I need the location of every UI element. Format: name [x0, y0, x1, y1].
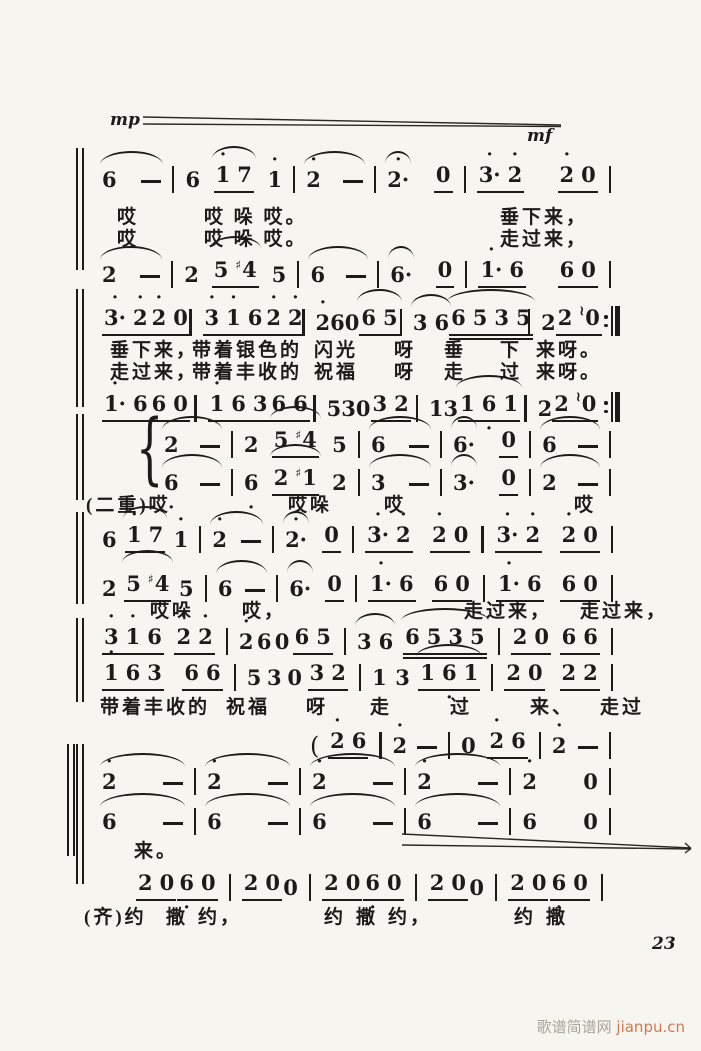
note-group [373, 782, 393, 796]
barline [609, 261, 611, 288]
note-group: 3··2· [365, 522, 413, 553]
note: 3· [205, 305, 220, 331]
barline [299, 768, 301, 795]
barline [352, 526, 354, 553]
note: 2 [554, 391, 569, 417]
note: 0 [356, 396, 371, 422]
barline [297, 261, 299, 288]
note: 1·· [480, 257, 502, 283]
note-group [343, 180, 363, 194]
barline [509, 808, 511, 835]
note: 6 [434, 310, 449, 336]
note-group [268, 822, 288, 836]
note: 1 [420, 660, 435, 686]
note: 3 [494, 305, 509, 331]
measure: 3·1·62·2· [193, 305, 302, 336]
note: 6 [231, 391, 246, 417]
note-group: 2 [538, 396, 553, 422]
repeat-end-barline [604, 306, 620, 336]
note: 2 [138, 870, 153, 896]
note: 5 [316, 624, 331, 650]
note: 0 [265, 870, 280, 896]
system-bracket [76, 618, 84, 702]
watermark-site-name: 歌谱简谱网 [537, 1018, 612, 1036]
note: 0 [324, 522, 339, 548]
note: 0 [345, 310, 360, 336]
note: 2 [184, 262, 199, 288]
note: 6· [365, 870, 380, 896]
note-group: 5 [272, 262, 287, 288]
note-group: 2·· [387, 167, 409, 193]
note-group: 6 [185, 167, 200, 193]
note: 2· [306, 167, 321, 193]
repeat-dot [604, 315, 608, 319]
ornament-icon: ≀ [579, 304, 584, 319]
note-group: 1·63 [208, 391, 270, 422]
barline [539, 732, 541, 759]
dash-note [373, 822, 393, 826]
note-group: 3 [395, 665, 410, 691]
octave-dot-above: · [421, 757, 427, 767]
lyric-segment: 撒 [356, 902, 378, 929]
note: 0 [327, 571, 342, 597]
octave-dot-above: · [230, 293, 236, 303]
watermark-domain-link[interactable]: jianpu.cn [616, 1018, 685, 1036]
note: 2· [102, 769, 117, 795]
note: 6 [147, 624, 162, 650]
voice-line: 225♯4566·06 [154, 422, 612, 458]
lyric-segment: 约， [388, 902, 432, 929]
dash-note [200, 483, 220, 487]
dash-note [417, 746, 437, 750]
barline [231, 431, 233, 458]
note-group: 65 [293, 624, 333, 655]
note-group: 2 [102, 262, 117, 288]
note: ≀0 [576, 385, 597, 417]
note: 2· [432, 522, 447, 548]
note-group: 1 [429, 396, 444, 422]
dash-note [241, 540, 261, 544]
lyrics-line: 哎哎 哚 哎。走过来， [92, 224, 612, 248]
note: 3·· [104, 305, 126, 331]
octave-dot-above: · [395, 155, 401, 165]
note-group: 20 [428, 870, 468, 901]
note: 2 [324, 870, 339, 896]
note: 0 [501, 427, 516, 453]
lyrics-line: 带着丰收的祝福呀走过来、走过 [92, 692, 614, 716]
octave-dot-above: · [397, 721, 403, 731]
barline [344, 628, 346, 655]
note: 6 [371, 432, 386, 458]
note: 1 [464, 660, 479, 686]
octave-dot-above: · [137, 293, 143, 303]
note: 6· [390, 262, 412, 288]
dash-note [373, 782, 393, 786]
note: ♯4 [148, 566, 169, 597]
note-group: 2·· [285, 527, 307, 553]
note-group: 5♯4 [212, 252, 259, 288]
note: 0 [287, 665, 302, 691]
note: 1· [174, 527, 189, 553]
measure: 1··660 [468, 257, 607, 288]
note-group: 1·7 [214, 162, 254, 193]
note-group: 6 [102, 167, 117, 193]
note-group: 6 [102, 527, 117, 553]
note-group [241, 540, 261, 554]
barline [172, 166, 174, 193]
octave-dot-above: · [436, 510, 442, 520]
voice-line: 2·2·2·2·2·0 [92, 768, 612, 795]
dash-note [409, 483, 429, 487]
note-group [163, 782, 183, 796]
note: 3 [267, 665, 282, 691]
dash-note [478, 782, 498, 786]
note-group: 20 [136, 870, 176, 901]
dash-note [140, 275, 160, 279]
repeat-end-barline [604, 392, 620, 422]
dynamic-mf-label: mf [527, 126, 552, 146]
octave-dot-above: · [217, 515, 223, 525]
barline [464, 166, 466, 193]
measure: 3··2·2·0 [485, 522, 610, 553]
barline [309, 874, 311, 901]
note-group: 0 [275, 629, 290, 655]
note: 0 [583, 769, 598, 795]
measure: 2··0 [377, 162, 462, 193]
measure: 2··0 [275, 522, 351, 553]
octave-dot-above: · [108, 648, 114, 658]
lyric-segment: (齐)约 [84, 902, 147, 929]
note: 1 [460, 391, 475, 417]
note: 2 [244, 870, 259, 896]
note-group: 0 [434, 162, 453, 193]
octave-dot-above: · [272, 155, 278, 165]
barline [609, 768, 611, 795]
octave-dot-above: · [156, 293, 162, 303]
note-group: 1· [174, 527, 189, 553]
note-group [478, 782, 498, 796]
lyric-segment: 祝福 [226, 692, 270, 719]
note: 2 [558, 305, 573, 331]
note-group: 20 [322, 870, 362, 901]
barline [194, 808, 196, 835]
lyric-segment: 约， [198, 902, 242, 929]
note: 0 [436, 162, 451, 188]
note: 0 [201, 870, 216, 896]
barline [415, 874, 417, 901]
dash-note [343, 180, 363, 184]
note: 5 [516, 305, 531, 331]
page-number: 23 [652, 934, 676, 954]
note: 1· [226, 305, 241, 331]
note-group: 16·1 [418, 660, 480, 691]
note: 0 [454, 522, 469, 548]
dash-note [409, 445, 429, 449]
barline [299, 808, 301, 835]
note-group: 6·0 [177, 870, 217, 901]
note: 0 [534, 624, 549, 650]
barline [272, 526, 274, 553]
note: 2· [489, 728, 504, 754]
repeat-dots [604, 401, 608, 413]
measure: 6 [92, 809, 193, 835]
note: 0 [581, 162, 596, 188]
note: 6 [562, 624, 577, 650]
dash-note [245, 589, 265, 593]
note-group: 1· [267, 167, 282, 193]
lyric-segment: 带着丰收的 [100, 692, 210, 719]
note-group: 2· [102, 769, 117, 795]
note: 6 [583, 624, 598, 650]
note-group [373, 822, 393, 836]
system-bracket [67, 744, 75, 856]
note-group: 60 [558, 257, 598, 288]
measure: 6·0 [380, 257, 464, 288]
lyric-segment: 走过 [600, 692, 644, 719]
lyrics-line: (齐)约撒约，约撒约，约撒 [92, 902, 604, 926]
note: 2· [212, 527, 227, 553]
barline [609, 808, 611, 835]
note: 6 [509, 257, 524, 283]
thin-bar [611, 306, 613, 336]
octave-dot-above: · [310, 155, 316, 165]
lyric-segment: 来呀。 [536, 357, 602, 384]
note: 0 [173, 305, 188, 331]
note-group: 0 [469, 875, 484, 901]
note: 0 [275, 629, 290, 655]
note: 3 [341, 396, 356, 422]
measure: 2022 [494, 660, 609, 691]
note-group: 3··2· [102, 305, 150, 336]
lyrics-line: 哎哎 哚 哎。垂下来， [92, 202, 612, 226]
note: 6 [511, 728, 526, 754]
barline [609, 431, 611, 458]
measure: 6·0 [443, 427, 528, 458]
note: 1· [267, 167, 282, 193]
note: 6 [102, 809, 117, 835]
note-group: 2·0 [430, 522, 470, 553]
barline [377, 261, 379, 288]
note: 0 [469, 875, 484, 901]
dash-note [200, 445, 220, 449]
octave-dot-above: · [106, 757, 112, 767]
note-group: 65 [359, 305, 399, 336]
barline [229, 874, 231, 901]
barline [481, 526, 483, 553]
barline [611, 628, 613, 655]
lyric-segment: 来。 [134, 836, 178, 863]
note-group: 0 [287, 665, 302, 691]
note: 6 [295, 624, 310, 650]
note: 6 [102, 167, 117, 193]
note-group: 1 [372, 665, 387, 691]
note: 6 [184, 660, 199, 686]
note-group: 6 [330, 310, 345, 336]
system-bracket [76, 148, 84, 270]
note-group: 22 [560, 660, 600, 691]
note-group: 6535 [449, 305, 533, 336]
note-group: 36 [357, 629, 393, 655]
thin-bar [611, 392, 613, 422]
watermark: 歌谱简谱网 jianpu.cn [537, 1016, 685, 1037]
note: 2· [393, 733, 408, 759]
barline [404, 808, 406, 835]
barline [440, 431, 442, 458]
octave-dot-above: · [566, 510, 572, 520]
note-group: 0 [345, 310, 360, 336]
note-group: 2· [312, 769, 327, 795]
measure: 206·0 [126, 870, 228, 901]
barline [194, 768, 196, 795]
note: 2· [522, 769, 537, 795]
measure: 200 [232, 870, 308, 901]
repeat-dot [604, 401, 608, 405]
measure: 6 [300, 262, 376, 288]
measure: 53032 [237, 660, 358, 691]
note: ≀0 [579, 299, 600, 331]
note-group [140, 275, 160, 289]
score-page: mp mf 661·71·2·2··03··2·2·0哎哎 哚 哎。垂下来，哎哎… [0, 0, 701, 1051]
note: 3 [373, 391, 388, 417]
note: 2 [562, 660, 577, 686]
note: 6 [560, 257, 575, 283]
note-group: 2·2· [264, 305, 304, 336]
octave-dot-above: · [334, 716, 340, 726]
octave-dot-above: · [181, 612, 187, 622]
note: 1·· [104, 391, 126, 417]
note-group: 1·7 [125, 522, 165, 553]
note: 5 [247, 665, 262, 691]
note-group: 2 [244, 432, 259, 458]
octave-dot-above: · [130, 612, 136, 622]
lyric-segment: 约 [324, 902, 346, 929]
lyric-segment: 过 [450, 692, 472, 719]
barline [609, 166, 611, 193]
note-group: 6 [310, 262, 325, 288]
lyric-segment: 约 [514, 902, 536, 929]
measure: 2· [542, 733, 608, 759]
measure: 2·6065 [306, 305, 399, 336]
note: 2· [330, 728, 345, 754]
lyric-segment: 撒 [546, 902, 568, 929]
note: 0 [532, 870, 547, 896]
octave-dot-above: · [378, 559, 384, 569]
note: 2 [583, 660, 598, 686]
measure: 2· [296, 167, 373, 193]
barline [611, 526, 613, 553]
lyric-segment: 祝福 [314, 357, 358, 384]
barline [358, 431, 360, 458]
note: 2· [207, 769, 222, 795]
note: 5 [332, 432, 347, 458]
note-group: 32 [308, 660, 348, 691]
note-group: 20 [508, 870, 548, 901]
note-group: 6·0 [363, 870, 403, 901]
note: 6 [310, 262, 325, 288]
barline [293, 166, 295, 193]
note: 6 [207, 809, 222, 835]
octave-dot-above: · [494, 716, 500, 726]
note-group [141, 180, 161, 194]
octave-dot-above: · [271, 293, 277, 303]
measure: 61·71· [175, 162, 292, 193]
note-group: 2· [306, 167, 321, 193]
note: 0 [346, 870, 361, 896]
barline [374, 166, 376, 193]
octave-dot-above: · [320, 298, 326, 308]
note: 5 [126, 571, 141, 597]
octave-dot-above: · [243, 617, 249, 627]
note-group: 66 [560, 624, 600, 655]
note: 7 [149, 522, 164, 548]
repeat-dots [604, 315, 608, 327]
octave-dot-above: · [488, 245, 494, 255]
barline [226, 628, 228, 655]
lyric-segment: 呀 [394, 357, 416, 384]
note: 0 [583, 571, 598, 597]
note: 6 [185, 167, 200, 193]
note: 6 [434, 571, 449, 597]
measure: 6 [302, 809, 403, 835]
voice-line: 61·71·2·2··03··2·2·03··2·2·0 [92, 522, 614, 553]
system-bracket [76, 414, 84, 500]
note: 0 [501, 465, 516, 491]
note-group: 6·0 [550, 870, 590, 901]
note: 6 [206, 660, 221, 686]
note-group: 6 [207, 809, 222, 835]
repeat-dot [604, 410, 608, 414]
octave-dot-above: · [487, 150, 493, 160]
note: 5 [327, 396, 342, 422]
note-group: 2·0 [558, 162, 598, 193]
barline [491, 664, 493, 691]
measure: 2066 [501, 624, 610, 655]
octave-dot-above: · [112, 379, 118, 389]
voice-line: 666660 [92, 808, 612, 835]
measure: 206·0 [498, 870, 600, 901]
note-group: 5 [327, 396, 342, 422]
lyric-segment: 来、 [530, 692, 574, 719]
note: 1·· [498, 571, 520, 597]
note: 1· [216, 162, 231, 188]
measure: 22≀0 [531, 299, 604, 336]
note-group: 2· [207, 769, 222, 795]
note: 6· [482, 391, 497, 417]
note: 0 [581, 257, 596, 283]
note: 2· [266, 305, 281, 331]
note: 2· [312, 769, 327, 795]
note-group: 2· [316, 310, 331, 336]
lyric-segment: 带着丰收的 [192, 357, 302, 384]
note: 6 [527, 571, 542, 597]
note: 2· [417, 769, 432, 795]
octave-dot-above: · [202, 612, 208, 622]
note: 0 [160, 870, 175, 896]
note-group: 5 [247, 665, 262, 691]
measure: 25♯45 [174, 252, 296, 288]
barline [465, 261, 467, 288]
note: 1 [429, 396, 444, 422]
barline [509, 768, 511, 795]
note: 2 [244, 432, 259, 458]
note-group: 1·63 [102, 660, 164, 691]
note: 0 [583, 522, 598, 548]
measure: 61·71· [92, 522, 198, 553]
dash-note [163, 782, 183, 786]
note-group [268, 782, 288, 796]
note: 0 [438, 257, 453, 283]
barline [234, 664, 236, 691]
